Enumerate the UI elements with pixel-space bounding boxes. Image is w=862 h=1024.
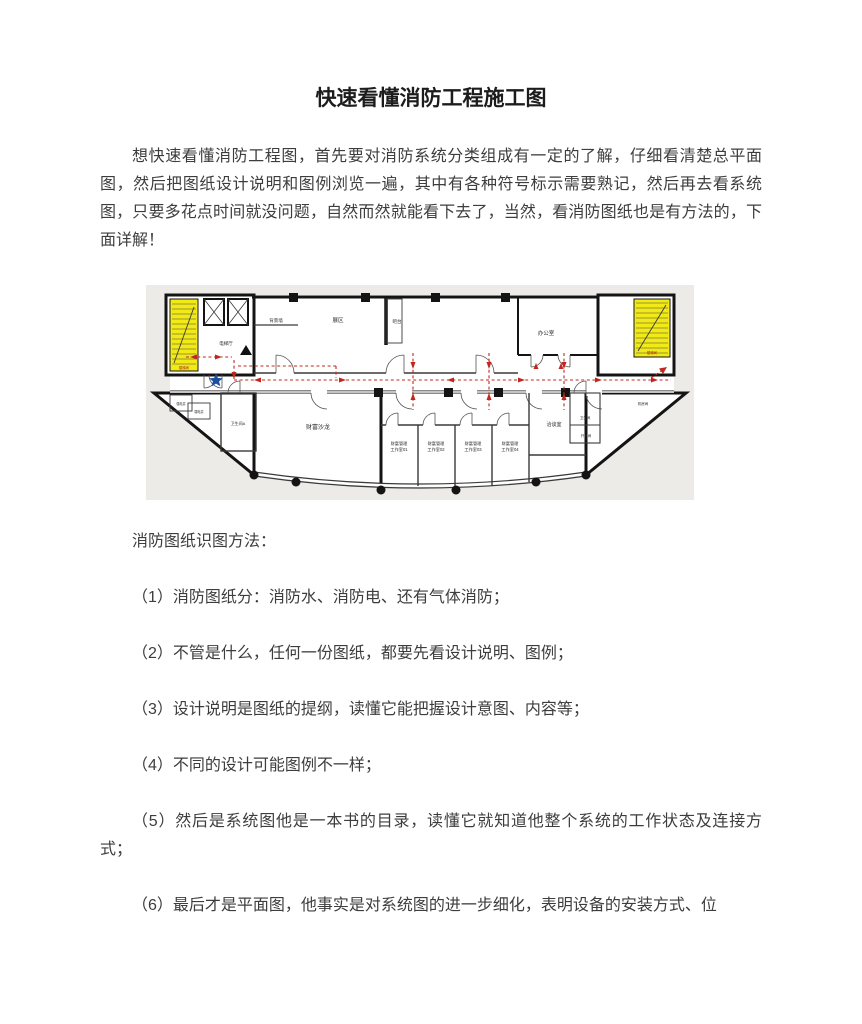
studio3-line2: 工作室03 <box>464 446 482 453</box>
method-item-2: （2）不管是什么，任何一份图纸，都要先看设计说明、图例； <box>100 640 762 668</box>
office-label: 办公室 <box>538 329 555 337</box>
studio2-line1: 财富管理 <box>428 440 446 447</box>
left-stair-label: 楼梯间 <box>179 365 190 370</box>
toilet-r-label: 卫生间 <box>580 415 591 420</box>
salon-label: 财富沙龙 <box>306 423 330 431</box>
studio4-line2: 工作室04 <box>501 446 519 453</box>
method-item-1: （1）消防图纸分：消防水、消防电、还有气体消防； <box>100 584 762 612</box>
floor-plan-figure: 楼梯间 电梯厅 楼梯间 办公室 <box>146 285 694 500</box>
method-item-5: （5）然后是系统图他是一本书的目录，读懂它就知道他整个系统的工作状态及连接方式； <box>100 808 762 864</box>
strong-shaft-label: 强电井 <box>176 401 186 406</box>
section-heading: 消防图纸识图方法： <box>100 528 762 556</box>
studio1-line2: 工作室01 <box>390 446 408 453</box>
machine-room-label: 机房间 <box>638 401 649 406</box>
intro-paragraph: 想快速看懂消防工程图，首先要对消防系统分类组成有一定的了解，仔细看清楚总平面图，… <box>100 143 762 255</box>
right-stair-label: 楼梯间 <box>647 350 658 355</box>
fire-evacuation-floor-plan: 楼梯间 电梯厅 楼梯间 办公室 <box>146 285 694 500</box>
studio3-line1: 财富管理 <box>465 440 483 447</box>
studio4-line1: 财富管理 <box>502 440 520 447</box>
water-room-label: 开水间 <box>581 433 592 438</box>
elevator-hall-label: 电梯厅 <box>219 340 233 347</box>
method-item-6: （6）最后才是平面图，他事实是对系统图的进一步细化，表明设备的安装方式、位 <box>100 892 762 920</box>
article: 快速看懂消防工程施工图 想快速看懂消防工程图，首先要对消防系统分类组成有一定的了… <box>100 0 762 920</box>
studio2-line2: 工作室02 <box>427 446 445 453</box>
page-title: 快速看懂消防工程施工图 <box>100 86 762 111</box>
method-item-3: （3）设计说明是图纸的提纲，读懂它能把握设计意图、内容等； <box>100 696 762 724</box>
meeting-label: 洽谈室 <box>546 421 561 428</box>
method-item-4: （4）不同的设计可能图例不一样； <box>100 752 762 780</box>
bar-label: 吧台 <box>393 318 402 325</box>
exhibit-label: 展区 <box>332 317 344 324</box>
weak-shaft-label: 弱电井 <box>194 409 204 414</box>
studio1-line1: 财富管理 <box>391 440 409 447</box>
toilet-a-label: 卫生间A <box>231 420 246 426</box>
background-wall-label: 背景墙 <box>269 317 283 324</box>
